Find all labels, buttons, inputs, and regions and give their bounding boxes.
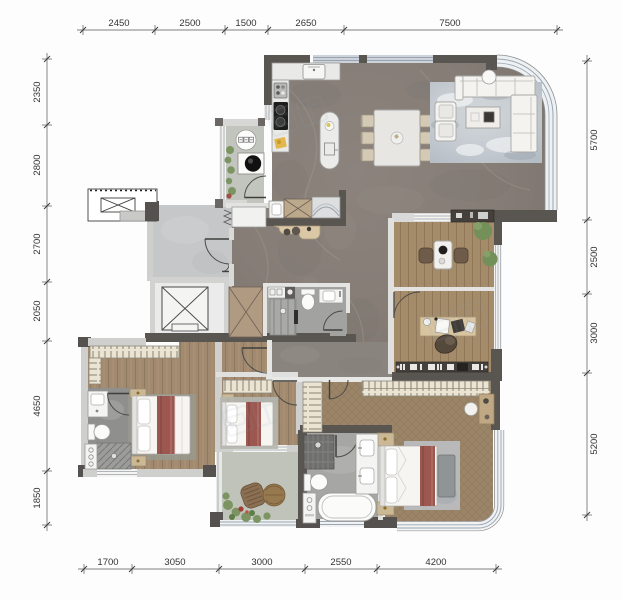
svg-text:2050: 2050 [32,300,43,321]
svg-text:5200: 5200 [589,433,600,454]
svg-text:4650: 4650 [32,395,43,416]
svg-text:2650: 2650 [295,18,316,29]
svg-text:2550: 2550 [330,557,351,568]
svg-text:3050: 3050 [164,557,185,568]
svg-text:1850: 1850 [32,487,43,508]
svg-text:5700: 5700 [589,129,600,150]
svg-text:2800: 2800 [32,154,43,175]
svg-text:1500: 1500 [235,18,256,29]
svg-text:2450: 2450 [108,18,129,29]
svg-text:2700: 2700 [32,233,43,254]
svg-text:3000: 3000 [251,557,272,568]
svg-text:2500: 2500 [589,246,600,267]
svg-text:2500: 2500 [179,18,200,29]
svg-text:4200: 4200 [425,557,446,568]
svg-text:3000: 3000 [589,322,600,343]
svg-text:1700: 1700 [97,557,118,568]
svg-text:7500: 7500 [439,18,460,29]
svg-text:2350: 2350 [32,81,43,102]
